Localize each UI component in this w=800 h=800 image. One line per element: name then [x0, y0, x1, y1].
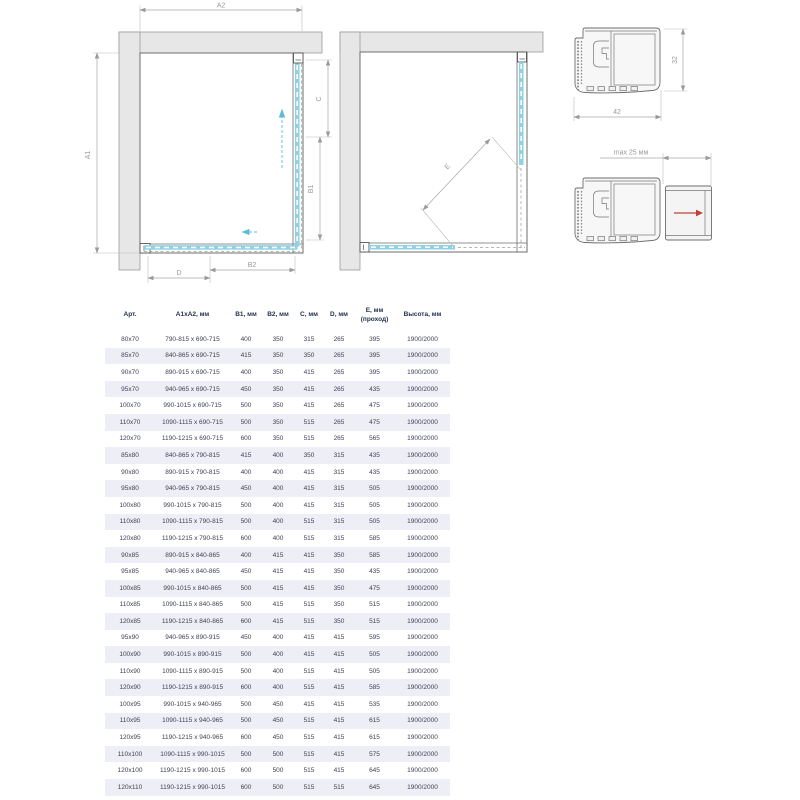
table-cell: 515: [294, 713, 324, 730]
dimensions-table: Арт. A1xA2, мм B1, мм B2, мм C, мм D, мм…: [105, 300, 450, 796]
table-cell: 990-1015 x 890-915: [155, 646, 230, 663]
table-cell: 350: [262, 348, 294, 365]
col-header-e: E, мм (проход): [354, 300, 395, 331]
table-cell: 1090-1115 x 790-815: [155, 514, 230, 531]
table-cell: 1900/2000: [395, 331, 450, 348]
plan-view-open-diagram: E: [335, 0, 560, 295]
table-cell: 395: [354, 331, 395, 348]
dim-label-b2: B2: [248, 262, 257, 269]
enclosure-frame: [360, 52, 527, 252]
table-cell: 265: [324, 397, 354, 414]
dim-label-a1: A1: [85, 151, 92, 160]
table-cell: 940-965 x 890-915: [155, 630, 230, 647]
table-row: 95x90940-965 x 890-915450400415415595190…: [105, 630, 450, 647]
table-cell: 890-915 x 690-715: [155, 364, 230, 381]
wall-left: [340, 32, 360, 270]
table-cell: 500: [262, 746, 294, 763]
table-cell: 100x90: [105, 646, 155, 663]
table-cell: 500: [230, 497, 262, 514]
table-cell: 1190-1215 x 890-915: [155, 679, 230, 696]
table-cell: 400: [262, 646, 294, 663]
col-header-d: D, мм: [324, 300, 354, 331]
table-cell: 315: [324, 447, 354, 464]
table-cell: 90x85: [105, 547, 155, 564]
table-row: 110x701090-1115 x 690-715500350515265475…: [105, 414, 450, 431]
table-row: 120x801190-1215 x 790-815600400515315585…: [105, 530, 450, 547]
table-row: 120x851190-1215 x 840-865600415515350515…: [105, 613, 450, 630]
table-cell: 415: [230, 348, 262, 365]
table-cell: 120x90: [105, 679, 155, 696]
table-cell: 1900/2000: [395, 464, 450, 481]
table-cell: 110x90: [105, 663, 155, 680]
table-cell: 565: [354, 431, 395, 448]
table-cell: 515: [294, 414, 324, 431]
table-cell: 1900/2000: [395, 613, 450, 630]
table-cell: 120x70: [105, 431, 155, 448]
table-cell: 615: [354, 713, 395, 730]
table-cell: 415: [294, 480, 324, 497]
size-spec-table: Арт. A1xA2, мм B1, мм B2, мм C, мм D, мм…: [105, 300, 450, 796]
table-cell: 500: [230, 713, 262, 730]
table-row: 110x801090-1115 x 790-815500400515315505…: [105, 514, 450, 531]
dim-label-c: C: [316, 96, 323, 101]
table-cell: 585: [354, 679, 395, 696]
table-cell: 400: [262, 514, 294, 531]
table-cell: 350: [294, 348, 324, 365]
table-cell: 1090-1115 x 840-865: [155, 597, 230, 614]
table-cell: 415: [294, 381, 324, 398]
table-cell: 585: [354, 547, 395, 564]
table-cell: 1900/2000: [395, 762, 450, 779]
table-cell: 265: [324, 381, 354, 398]
table-cell: 515: [354, 613, 395, 630]
table-cell: 1900/2000: [395, 381, 450, 398]
table-cell: 1090-1115 x 940-965: [155, 713, 230, 730]
table-row: 80x70790-815 x 690-715400350315265395190…: [105, 331, 450, 348]
table-row: 110x851090-1115 x 840-865500415515350515…: [105, 597, 450, 614]
table-cell: 500: [230, 580, 262, 597]
dim-label-max25: max 25 мм: [614, 150, 649, 157]
table-cell: 515: [294, 762, 324, 779]
table-row: 90x85890-915 x 840-865400415415350585190…: [105, 547, 450, 564]
table-cell: 350: [324, 547, 354, 564]
table-cell: 600: [230, 762, 262, 779]
table-row: 120x951190-1215 x 940-965600450515415615…: [105, 729, 450, 746]
table-cell: 415: [294, 364, 324, 381]
table-cell: 415: [294, 497, 324, 514]
table-cell: 515: [324, 779, 354, 796]
table-cell: 395: [354, 364, 395, 381]
table-cell: 100x80: [105, 497, 155, 514]
table-cell: 535: [354, 696, 395, 713]
table-cell: 100x70: [105, 397, 155, 414]
table-cell: 400: [230, 331, 262, 348]
table-cell: 315: [324, 464, 354, 481]
dim-label-b1: B1: [308, 185, 315, 194]
table-row: 95x80940-965 x 790-815450400415315505190…: [105, 480, 450, 497]
table-cell: 315: [324, 514, 354, 531]
table-cell: 350: [262, 431, 294, 448]
table-cell: 515: [294, 729, 324, 746]
table-cell: 1900/2000: [395, 746, 450, 763]
table-cell: 515: [294, 746, 324, 763]
table-cell: 350: [324, 563, 354, 580]
table-cell: 1090-1115 x 890-915: [155, 663, 230, 680]
table-cell: 940-965 x 840-865: [155, 563, 230, 580]
wall-profile-top: [518, 52, 527, 62]
table-cell: 500: [230, 746, 262, 763]
table-cell: 515: [294, 613, 324, 630]
table-cell: 450: [230, 381, 262, 398]
table-cell: 415: [324, 663, 354, 680]
table-cell: 1900/2000: [395, 497, 450, 514]
table-cell: 1190-1215 x 840-865: [155, 613, 230, 630]
table-cell: 400: [262, 663, 294, 680]
wall-profile-top: [294, 53, 304, 63]
table-cell: 110x100: [105, 746, 155, 763]
table-row: 90x70890-915 x 690-715400350415265395190…: [105, 364, 450, 381]
table-cell: 840-865 x 690-715: [155, 348, 230, 365]
table-cell: 1900/2000: [395, 679, 450, 696]
table-cell: 265: [324, 331, 354, 348]
table-cell: 1190-1215 x 690-715: [155, 431, 230, 448]
table-row: 85x70840-865 x 690-715415350350265395190…: [105, 348, 450, 365]
table-cell: 350: [324, 613, 354, 630]
table-cell: 515: [294, 431, 324, 448]
table-cell: 500: [230, 414, 262, 431]
table-cell: 415: [294, 630, 324, 647]
table-cell: 600: [230, 613, 262, 630]
table-cell: 1900/2000: [395, 547, 450, 564]
table-cell: 415: [294, 563, 324, 580]
table-cell: 450: [230, 630, 262, 647]
wall-top: [340, 32, 543, 52]
table-cell: 415: [294, 397, 324, 414]
table-cell: 515: [294, 597, 324, 614]
table-cell: 415: [324, 713, 354, 730]
table-cell: 315: [324, 497, 354, 514]
table-cell: 95x70: [105, 381, 155, 398]
table-cell: 615: [354, 729, 395, 746]
table-cell: 415: [262, 547, 294, 564]
table-cell: 400: [262, 530, 294, 547]
table-cell: 575: [354, 746, 395, 763]
table-cell: 940-965 x 790-815: [155, 480, 230, 497]
table-cell: 100x95: [105, 696, 155, 713]
table-cell: 500: [230, 597, 262, 614]
table-cell: 350: [324, 597, 354, 614]
table-cell: 415: [294, 580, 324, 597]
table-row: 120x901190-1215 x 890-915600400515415585…: [105, 679, 450, 696]
table-cell: 350: [262, 381, 294, 398]
table-row: 110x901090-1115 x 890-915500400515415505…: [105, 663, 450, 680]
table-cell: 1900/2000: [395, 364, 450, 381]
table-cell: 595: [354, 630, 395, 647]
table-cell: 990-1015 x 940-965: [155, 696, 230, 713]
table-cell: 475: [354, 414, 395, 431]
table-cell: 600: [230, 729, 262, 746]
table-cell: 500: [230, 514, 262, 531]
table-cell: 80x70: [105, 331, 155, 348]
table-cell: 265: [324, 364, 354, 381]
table-cell: 400: [230, 364, 262, 381]
table-cell: 95x85: [105, 563, 155, 580]
table-cell: 505: [354, 663, 395, 680]
table-cell: 85x70: [105, 348, 155, 365]
table-cell: 505: [354, 497, 395, 514]
table-cell: 450: [230, 480, 262, 497]
table-row: 110x951090-1115 x 940-965500450515415615…: [105, 713, 450, 730]
table-cell: 415: [262, 563, 294, 580]
table-cell: 110x95: [105, 713, 155, 730]
enclosure-frame: [140, 53, 303, 253]
table-cell: 120x95: [105, 729, 155, 746]
table-cell: 500: [230, 397, 262, 414]
table-cell: 435: [354, 381, 395, 398]
table-cell: 415: [262, 597, 294, 614]
shower-enclosure-spec-sheet: A2 A1 C B1 D B2: [0, 0, 800, 800]
table-cell: 400: [262, 679, 294, 696]
table-cell: 515: [294, 530, 324, 547]
table-cell: 890-915 x 840-865: [155, 547, 230, 564]
table-cell: 505: [354, 514, 395, 531]
table-cell: 415: [294, 696, 324, 713]
table-cell: 1900/2000: [395, 447, 450, 464]
table-cell: 1900/2000: [395, 779, 450, 796]
table-row: 100x70990-1015 x 690-7155003504152654751…: [105, 397, 450, 414]
dim-label-d: D: [176, 270, 181, 277]
table-cell: 1900/2000: [395, 630, 450, 647]
table-cell: 315: [324, 480, 354, 497]
table-cell: 1900/2000: [395, 580, 450, 597]
table-row: 120x1101190-1215 x 990-10156005005155156…: [105, 779, 450, 796]
table-cell: 120x110: [105, 779, 155, 796]
table-cell: 1190-1215 x 790-815: [155, 530, 230, 547]
table-cell: 415: [294, 464, 324, 481]
table-cell: 110x80: [105, 514, 155, 531]
table-cell: 1900/2000: [395, 514, 450, 531]
table-cell: 1190-1215 x 990-1015: [155, 762, 230, 779]
table-cell: 350: [262, 397, 294, 414]
table-cell: 515: [294, 514, 324, 531]
table-cell: 400: [262, 497, 294, 514]
col-header-art: Арт.: [105, 300, 155, 331]
table-cell: 400: [230, 464, 262, 481]
table-row: 120x1001190-1215 x 990-10156005005154156…: [105, 762, 450, 779]
table-cell: 600: [230, 530, 262, 547]
table-cell: 475: [354, 397, 395, 414]
table-cell: 645: [354, 762, 395, 779]
wall-top: [119, 32, 322, 53]
table-row: 100x85990-1015 x 840-8655004154153504751…: [105, 580, 450, 597]
table-cell: 415: [230, 447, 262, 464]
table-cell: 415: [262, 580, 294, 597]
table-cell: 1900/2000: [395, 696, 450, 713]
table-cell: 515: [294, 663, 324, 680]
table-cell: 1090-1115 x 690-715: [155, 414, 230, 431]
table-cell: 1900/2000: [395, 414, 450, 431]
table-cell: 1900/2000: [395, 597, 450, 614]
table-cell: 395: [354, 348, 395, 365]
table-cell: 90x70: [105, 364, 155, 381]
table-cell: 1900/2000: [395, 663, 450, 680]
col-header-b1: B1, мм: [230, 300, 262, 331]
wall-left: [119, 32, 140, 270]
col-header-c: C, мм: [294, 300, 324, 331]
table-cell: 990-1015 x 790-815: [155, 497, 230, 514]
table-cell: 95x90: [105, 630, 155, 647]
table-cell: 1090-1115 x 990-1015: [155, 746, 230, 763]
table-cell: 990-1015 x 840-865: [155, 580, 230, 597]
table-header-row: Арт. A1xA2, мм B1, мм B2, мм C, мм D, мм…: [105, 300, 450, 331]
table-cell: 600: [230, 679, 262, 696]
table-cell: 500: [262, 762, 294, 779]
table-cell: 415: [294, 646, 324, 663]
table-row: 100x90990-1015 x 890-9155004004154155051…: [105, 646, 450, 663]
table-cell: 95x80: [105, 480, 155, 497]
profile-adjustable-section: [575, 178, 660, 243]
table-row: 100x95990-1015 x 940-9655004504154155351…: [105, 696, 450, 713]
table-cell: 315: [294, 331, 324, 348]
table-cell: 1900/2000: [395, 713, 450, 730]
table-cell: 1190-1215 x 990-1015: [155, 779, 230, 796]
table-cell: 265: [324, 414, 354, 431]
table-cell: 85x80: [105, 447, 155, 464]
table-cell: 415: [262, 613, 294, 630]
dim-label-32: 32: [672, 56, 679, 64]
profile-sections-diagram: 42 32 max 25 мм: [555, 10, 800, 270]
table-cell: 990-1015 x 690-715: [155, 397, 230, 414]
table-cell: 1190-1215 x 940-965: [155, 729, 230, 746]
table-cell: 600: [230, 779, 262, 796]
table-row: 120x701190-1215 x 690-715600350515265565…: [105, 431, 450, 448]
table-cell: 1900/2000: [395, 397, 450, 414]
table-row: 95x70940-965 x 690-715450350415265435190…: [105, 381, 450, 398]
table-cell: 515: [354, 597, 395, 614]
table-cell: 400: [230, 547, 262, 564]
table-cell: 940-965 x 690-715: [155, 381, 230, 398]
table-cell: 500: [262, 779, 294, 796]
table-cell: 450: [262, 696, 294, 713]
table-cell: 450: [262, 729, 294, 746]
table-cell: 350: [262, 414, 294, 431]
table-cell: 790-815 x 690-715: [155, 331, 230, 348]
profile-main-section: [575, 28, 660, 93]
col-header-height: Высота, мм: [395, 300, 450, 331]
table-cell: 505: [354, 646, 395, 663]
table-cell: 415: [324, 762, 354, 779]
table-cell: 350: [262, 331, 294, 348]
table-cell: 515: [294, 679, 324, 696]
table-cell: 450: [230, 563, 262, 580]
table-cell: 500: [230, 663, 262, 680]
table-row: 90x80890-915 x 790-815400400415315435190…: [105, 464, 450, 481]
table-cell: 1900/2000: [395, 431, 450, 448]
table-cell: 1900/2000: [395, 530, 450, 547]
table-cell: 435: [354, 464, 395, 481]
table-cell: 1900/2000: [395, 646, 450, 663]
table-cell: 1900/2000: [395, 348, 450, 365]
plan-view-closed-diagram: A2 A1 C B1 D B2: [60, 0, 340, 295]
table-cell: 415: [324, 746, 354, 763]
table-row: 95x85940-965 x 840-865450415415350435190…: [105, 563, 450, 580]
table-row: 100x80990-1015 x 790-8155004004153155051…: [105, 497, 450, 514]
table-cell: 585: [354, 530, 395, 547]
table-cell: 505: [354, 480, 395, 497]
table-cell: 400: [262, 480, 294, 497]
table-cell: 415: [324, 630, 354, 647]
table-cell: 120x80: [105, 530, 155, 547]
table-cell: 435: [354, 447, 395, 464]
table-cell: 645: [354, 779, 395, 796]
table-cell: 415: [324, 696, 354, 713]
table-cell: 840-865 x 790-815: [155, 447, 230, 464]
table-cell: 1900/2000: [395, 729, 450, 746]
table-cell: 265: [324, 348, 354, 365]
table-cell: 435: [354, 563, 395, 580]
table-cell: 350: [324, 580, 354, 597]
wall-profile-bottom-left: [360, 243, 369, 253]
table-cell: 400: [262, 630, 294, 647]
table-cell: 315: [324, 530, 354, 547]
table-cell: 350: [262, 364, 294, 381]
table-cell: 120x100: [105, 762, 155, 779]
table-cell: 475: [354, 580, 395, 597]
table-cell: 265: [324, 431, 354, 448]
table-cell: 100x85: [105, 580, 155, 597]
table-cell: 450: [262, 713, 294, 730]
table-cell: 890-915 x 790-815: [155, 464, 230, 481]
table-row: 85x80840-865 x 790-815415400350315435190…: [105, 447, 450, 464]
table-cell: 350: [294, 447, 324, 464]
col-header-a1a2: A1xA2, мм: [155, 300, 230, 331]
table-cell: 1900/2000: [395, 480, 450, 497]
col-header-b2: B2, мм: [262, 300, 294, 331]
table-cell: 400: [262, 447, 294, 464]
table-row: 110x1001090-1115 x 990-10155005005154155…: [105, 746, 450, 763]
table-cell: 400: [262, 464, 294, 481]
dim-label-42: 42: [613, 109, 621, 116]
table-cell: 415: [324, 679, 354, 696]
table-cell: 415: [294, 547, 324, 564]
table-cell: 600: [230, 431, 262, 448]
table-cell: 110x85: [105, 597, 155, 614]
table-cell: 415: [324, 646, 354, 663]
table-cell: 500: [230, 646, 262, 663]
table-cell: 120x85: [105, 613, 155, 630]
table-cell: 515: [294, 779, 324, 796]
table-body: 80x70790-815 x 690-715400350315265395190…: [105, 331, 450, 796]
table-cell: 415: [324, 729, 354, 746]
table-cell: 1900/2000: [395, 563, 450, 580]
table-cell: 500: [230, 696, 262, 713]
dim-label-a2: A2: [217, 3, 226, 10]
table-cell: 110x70: [105, 414, 155, 431]
table-cell: 90x80: [105, 464, 155, 481]
